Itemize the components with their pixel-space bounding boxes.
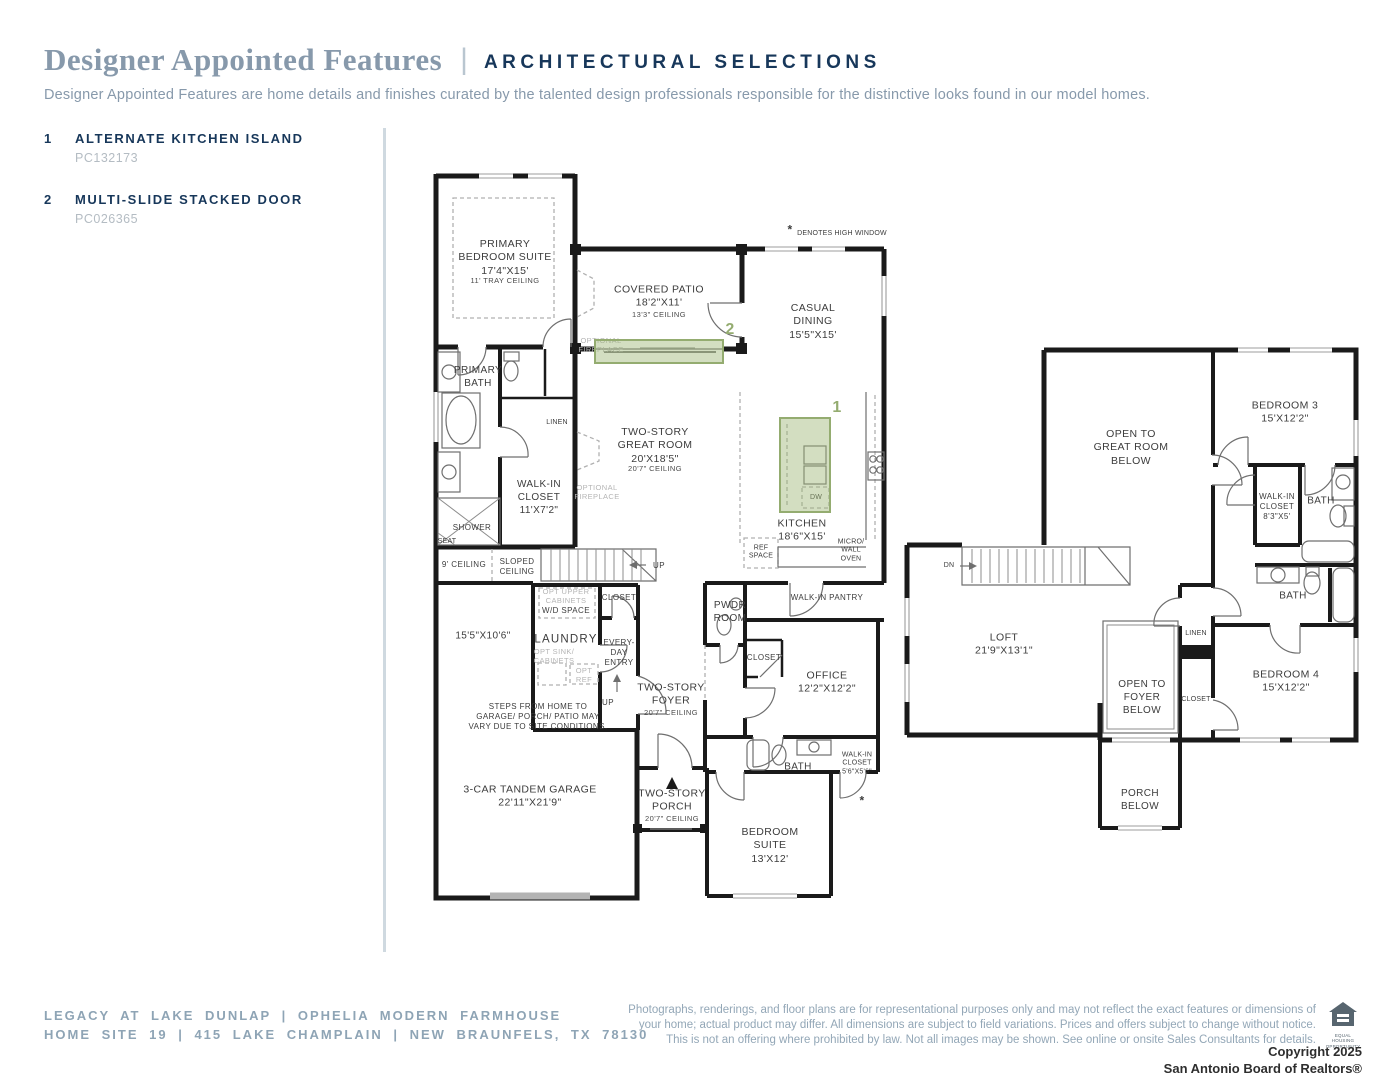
room-label-garage: 3-CAR TANDEM GARAGE 22'11"X21'9"	[463, 784, 596, 811]
room-ceiling-primary-bedroom: 11' TRAY CEILING	[471, 276, 540, 286]
room-label-loft: LOFT 21'9"X13'1"	[975, 632, 1033, 659]
feature-marker-1: 1	[832, 398, 841, 418]
ref-space-label: REF SPACE	[749, 545, 773, 562]
high-window-note: DENOTES HIGH WINDOW	[797, 230, 887, 238]
room-ceiling-great-room: 20'7" CEILING	[628, 464, 682, 474]
room-label-primary-bath: PRIMARY BATH	[454, 365, 502, 391]
up-label-stairs: UP	[653, 561, 665, 571]
open-to-foyer-label: OPEN TO FOYER BELOW	[1118, 679, 1165, 717]
room-label-everyday-entry: EVERY- DAY ENTRY	[603, 638, 634, 668]
room-ceiling-porch: 20'7" CEILING	[645, 814, 699, 824]
feature-marker-2: 2	[725, 320, 734, 340]
room-label-walk-in-closet-83: WALK-IN CLOSET 8'3"X5'	[1259, 492, 1295, 522]
room-label-great-room: TWO-STORY GREAT ROOM 20'X18'5"	[618, 426, 693, 466]
room-label-bedroom3: BEDROOM 3 15'X12'2"	[1252, 400, 1319, 427]
closet-label-2: CLOSET	[1181, 696, 1210, 704]
shower-label: SHOWER	[453, 523, 491, 533]
sloped-ceiling-label: SLOPED CEILING	[500, 557, 535, 577]
room-label-bath: BATH	[784, 762, 812, 775]
designer-features-sheet: Designer Appointed Features | ARCHITECTU…	[0, 0, 1398, 1080]
room-label-walk-in-closet: WALK-IN CLOSET 11'X7'2"	[517, 479, 561, 517]
opt-upper-cabinets-label: OPT UPPER CABINETS	[543, 587, 590, 605]
closet-star: *	[859, 793, 864, 808]
room-label-bath-upper: BATH	[1307, 496, 1335, 509]
wd-space-label: W/D SPACE	[542, 606, 590, 616]
room-label-bedroom4: BEDROOM 4 15'X12'2"	[1253, 669, 1320, 696]
room-label-kitchen: KITCHEN 18'6"X15'	[778, 518, 827, 545]
garage-dim-label: 15'5"X10'6"	[455, 631, 510, 644]
room-label-bath-hall: BATH	[1279, 591, 1307, 604]
room-ceiling-covered-patio: 13'3" CEILING	[632, 310, 686, 320]
dn-label: DN	[944, 562, 955, 570]
closet-label-laundry: CLOSET	[602, 593, 636, 603]
optional-fireplace-label: OPTIONAL FIREPLACE	[574, 483, 619, 501]
linen-label-2: LINEN	[1185, 630, 1207, 638]
room-label-casual-dining: CASUAL DINING 15'5"X15'	[789, 302, 837, 342]
room-label-covered-patio: COVERED PATIO 18'2"X11'	[614, 284, 704, 311]
room-label-walk-in-closet-small: WALK-IN CLOSET 5'6"X5'6"	[842, 751, 872, 776]
room-label-bedroom-suite: BEDROOM SUITE 13'X12'	[741, 826, 798, 866]
room-ceiling-foyer: 20'7" CEILING	[644, 708, 698, 718]
opt-sink-cabinets-label: OPT SINK/ CABINETS	[534, 647, 575, 665]
room-label-laundry: LAUNDRY	[534, 633, 597, 648]
room-label-pwdr-room: PWDR ROOM	[714, 600, 747, 626]
room-label-office: OFFICE 12'2"X12'2"	[798, 670, 856, 697]
steps-note: STEPS FROM HOME TO GARAGE/ PORCH/ PATIO …	[469, 702, 608, 732]
linen-label: LINEN	[546, 419, 568, 427]
room-label-two-story-foyer: TWO-STORY FOYER	[637, 682, 704, 709]
feature-highlight-kitchen-island	[779, 417, 831, 513]
micro-wall-oven-label: MICRO/ WALL OVEN	[838, 538, 864, 563]
opt-ref-label: OPT REF	[576, 666, 593, 684]
room-label-walk-in-pantry: WALK-IN PANTRY	[791, 593, 864, 603]
open-to-great-room-label: OPEN TO GREAT ROOM BELOW	[1094, 428, 1169, 468]
seat-label: SEAT	[438, 538, 457, 546]
porch-below-label: PORCH BELOW	[1121, 788, 1159, 814]
room-label-two-story-porch: TWO-STORY PORCH	[638, 788, 705, 815]
ceiling-9-label: 9' CEILING	[442, 560, 486, 570]
feature-highlight-multi-slide-door	[594, 339, 724, 364]
room-label-primary-bedroom: PRIMARY BEDROOM SUITE 17'4"X15'	[458, 238, 551, 278]
high-window-star: *	[787, 222, 792, 237]
floor-plan-drawing	[0, 0, 1398, 1080]
closet-label-office: CLOSET	[747, 653, 781, 663]
